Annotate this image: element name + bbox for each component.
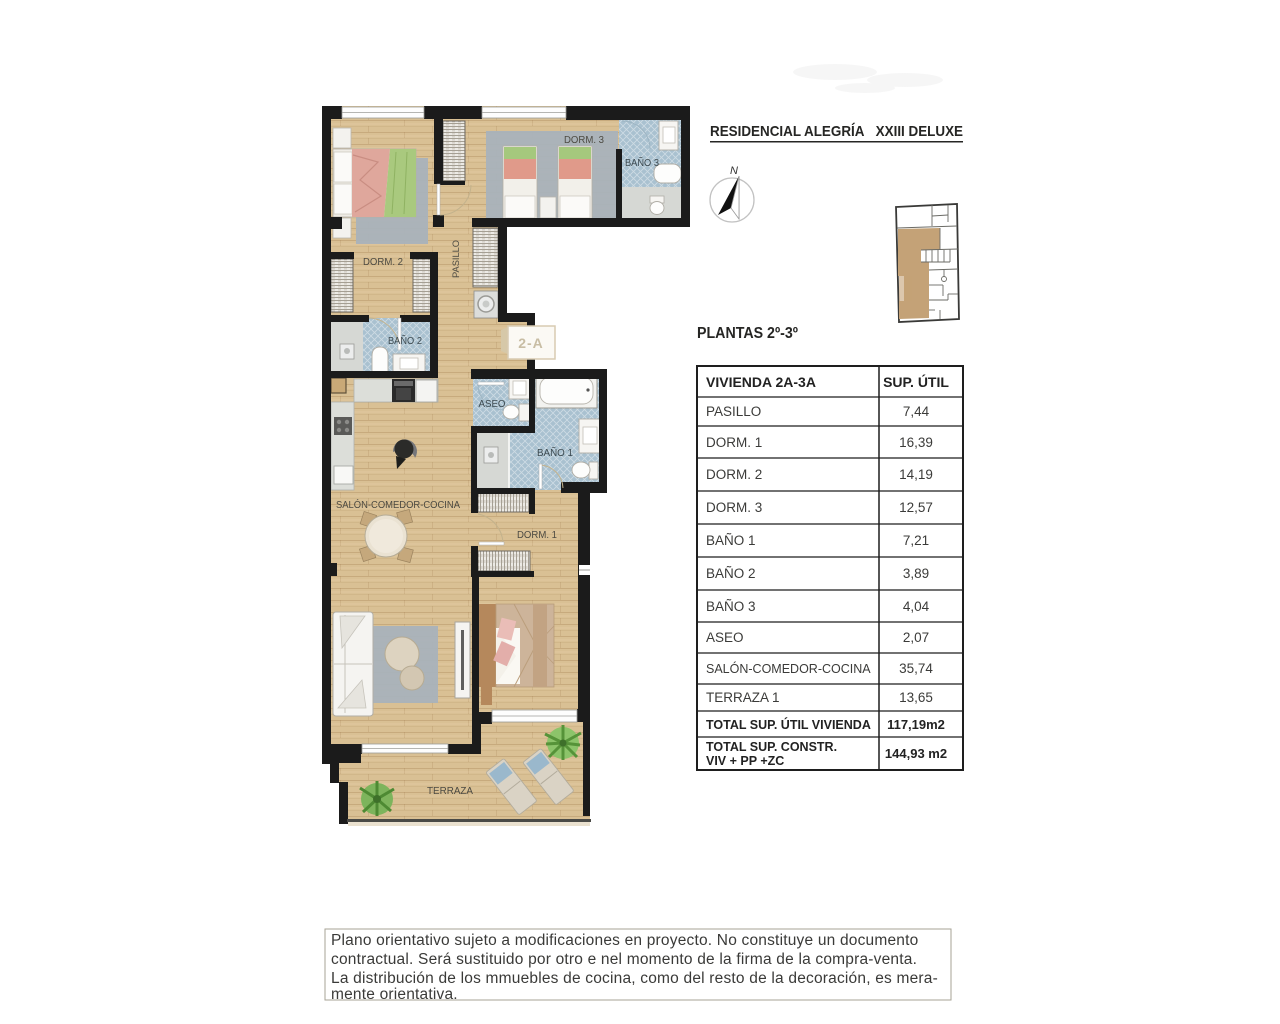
svg-text:La distribución de los mmueble: La distribución de los mmuebles de cocin… bbox=[331, 970, 938, 987]
svg-text:7,21: 7,21 bbox=[903, 533, 929, 548]
svg-text:7,44: 7,44 bbox=[903, 404, 930, 419]
svg-text:RESIDENCIAL ALEGRÍA XXIII DE: RESIDENCIAL ALEGRÍA XXIII DELUXE bbox=[710, 123, 963, 140]
svg-text:BAÑO 2: BAÑO 2 bbox=[706, 566, 756, 581]
svg-text:DORM. 3: DORM. 3 bbox=[706, 500, 762, 515]
svg-text:TERRAZA: TERRAZA bbox=[427, 786, 473, 797]
svg-text:mente orientativa.: mente orientativa. bbox=[331, 986, 458, 1003]
svg-text:VIVIENDA 2A-3A: VIVIENDA 2A-3A bbox=[706, 374, 816, 390]
svg-text:Plano orientativo sujeto a mod: Plano orientativo sujeto a modificacione… bbox=[331, 932, 918, 949]
svg-text:DORM. 1: DORM. 1 bbox=[517, 530, 557, 541]
svg-text:DORM. 3: DORM. 3 bbox=[564, 135, 604, 146]
svg-text:12,57: 12,57 bbox=[899, 500, 933, 515]
svg-text:144,93 m2: 144,93 m2 bbox=[885, 746, 947, 761]
svg-text:BAÑO 3: BAÑO 3 bbox=[706, 599, 756, 614]
svg-text:VIV + PP +ZC: VIV + PP +ZC bbox=[706, 754, 784, 768]
svg-text:13,65: 13,65 bbox=[899, 690, 933, 705]
svg-text:SALÓN-COMEDOR-COCINA: SALÓN-COMEDOR-COCINA bbox=[706, 661, 871, 676]
svg-text:PASILLO: PASILLO bbox=[706, 404, 761, 419]
svg-text:ASEO: ASEO bbox=[706, 630, 744, 645]
svg-text:PLANTAS 2º-3º: PLANTAS 2º-3º bbox=[697, 325, 798, 342]
svg-text:contractual. Será sustituido p: contractual. Será sustituido por otro e … bbox=[331, 951, 917, 968]
svg-text:TERRAZA 1: TERRAZA 1 bbox=[706, 690, 780, 705]
svg-text:PASILLO: PASILLO bbox=[451, 240, 462, 278]
svg-text:N: N bbox=[730, 165, 738, 177]
svg-text:BAÑO 1: BAÑO 1 bbox=[706, 533, 756, 548]
svg-text:4,04: 4,04 bbox=[903, 599, 930, 614]
svg-text:117,19m2: 117,19m2 bbox=[887, 717, 945, 732]
svg-text:16,39: 16,39 bbox=[899, 435, 933, 450]
svg-text:SALÓN-COMEDOR-COCINA: SALÓN-COMEDOR-COCINA bbox=[336, 498, 460, 511]
svg-text:TOTAL SUP. CONSTR.: TOTAL SUP. CONSTR. bbox=[706, 740, 837, 754]
svg-text:BAÑO 3: BAÑO 3 bbox=[625, 156, 659, 169]
svg-text:DORM. 2: DORM. 2 bbox=[363, 257, 403, 268]
svg-text:DORM. 2: DORM. 2 bbox=[706, 467, 762, 482]
svg-text:35,74: 35,74 bbox=[899, 661, 933, 676]
svg-text:BAÑO 2: BAÑO 2 bbox=[388, 334, 422, 347]
svg-text:ASEO: ASEO bbox=[479, 399, 506, 410]
svg-text:3,89: 3,89 bbox=[903, 566, 929, 581]
svg-text:2-A: 2-A bbox=[518, 335, 544, 351]
svg-text:TOTAL SUP. ÚTIL VIVIENDA: TOTAL SUP. ÚTIL VIVIENDA bbox=[706, 717, 871, 732]
svg-text:2,07: 2,07 bbox=[903, 630, 929, 645]
svg-text:14,19: 14,19 bbox=[899, 467, 933, 482]
svg-text:SUP. ÚTIL: SUP. ÚTIL bbox=[883, 373, 949, 390]
svg-text:BAÑO 1: BAÑO 1 bbox=[537, 446, 573, 459]
svg-text:DORM. 1: DORM. 1 bbox=[706, 435, 762, 450]
